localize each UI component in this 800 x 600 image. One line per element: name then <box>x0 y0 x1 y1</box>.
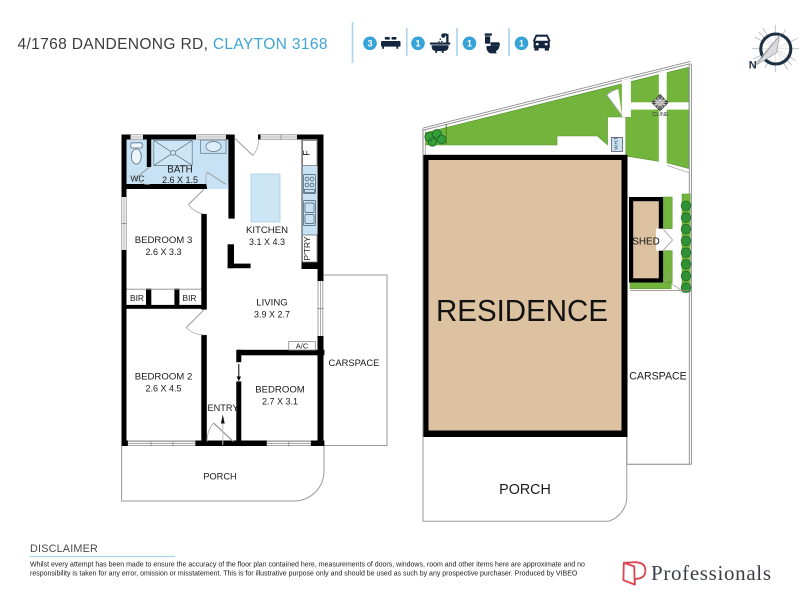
svg-text:2.6 X 1.5: 2.6 X 1.5 <box>162 175 198 185</box>
svg-text:ENTRY: ENTRY <box>208 403 239 413</box>
svg-text:Professionals: Professionals <box>651 561 771 585</box>
svg-text:LIVING: LIVING <box>256 298 287 309</box>
svg-text:SHED: SHED <box>632 236 660 247</box>
svg-text:RESIDENCE: RESIDENCE <box>436 293 608 328</box>
svg-text:2.6 X 3.3: 2.6 X 3.3 <box>145 247 181 257</box>
svg-text:1: 1 <box>519 39 524 49</box>
svg-text:Whilst every attempt has been: Whilst every attempt has been made to en… <box>30 562 585 569</box>
svg-text:DISCLAIMER: DISCLAIMER <box>30 543 98 555</box>
svg-text:CLINE: CLINE <box>652 112 669 118</box>
svg-text:3.1 X 4.3: 3.1 X 4.3 <box>249 237 285 247</box>
svg-text:WC: WC <box>130 174 144 184</box>
svg-text:BEDROOM: BEDROOM <box>255 385 305 396</box>
svg-text:F: F <box>302 150 312 156</box>
svg-text:BEDROOM 3: BEDROOM 3 <box>135 235 193 246</box>
svg-text:CARSPACE: CARSPACE <box>629 371 687 383</box>
svg-text:CARSPACE: CARSPACE <box>329 357 380 368</box>
svg-text:responsibility is taken for an: responsibility is taken for any error, o… <box>30 571 578 578</box>
svg-text:2.7 X 3.1: 2.7 X 3.1 <box>262 397 298 407</box>
svg-text:2.6 X 4.5: 2.6 X 4.5 <box>145 384 181 394</box>
svg-text:BATH: BATH <box>167 165 192 176</box>
svg-text:N: N <box>749 60 757 72</box>
svg-text:A/C: A/C <box>296 341 309 350</box>
svg-text:3: 3 <box>367 39 372 49</box>
svg-text:3.9 X 2.7: 3.9 X 2.7 <box>254 310 290 320</box>
svg-text:4/1768 DANDENONG RD, CLAYTON 3: 4/1768 DANDENONG RD, CLAYTON 3168 <box>18 36 328 53</box>
svg-text:P'TRY: P'TRY <box>302 236 312 260</box>
svg-text:1: 1 <box>467 39 472 49</box>
svg-text:PORCH: PORCH <box>499 482 551 498</box>
svg-text:W.H.T: W.H.T <box>614 137 619 150</box>
svg-text:KITCHEN: KITCHEN <box>246 225 288 236</box>
svg-text:1: 1 <box>415 39 420 49</box>
svg-text:BEDROOM 2: BEDROOM 2 <box>135 372 193 383</box>
svg-text:BIR: BIR <box>130 293 144 303</box>
svg-text:BIR: BIR <box>183 293 197 303</box>
svg-text:PORCH: PORCH <box>203 472 236 482</box>
